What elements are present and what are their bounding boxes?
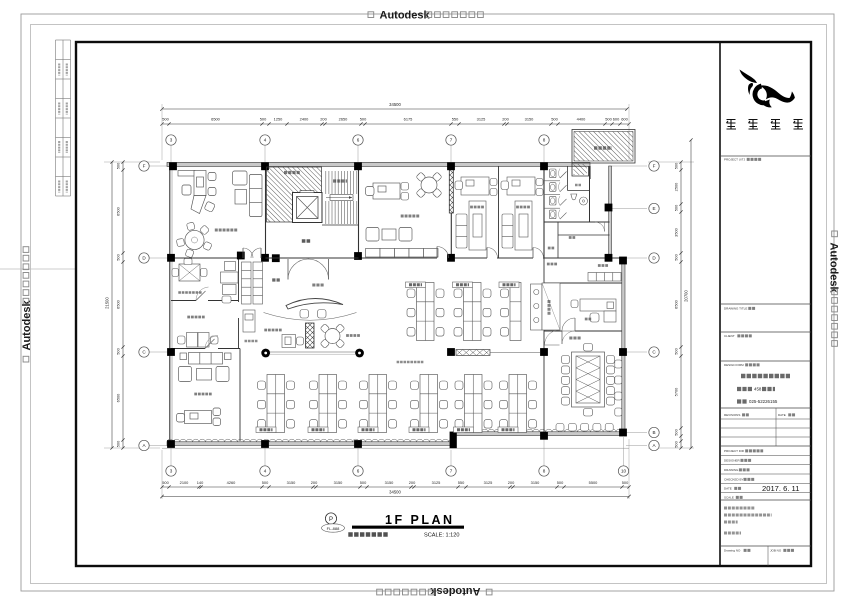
svg-text:34500: 34500 <box>389 102 401 107</box>
svg-text:200: 200 <box>508 480 515 485</box>
svg-text:3125: 3125 <box>484 480 493 485</box>
svg-text:1250: 1250 <box>274 117 283 122</box>
svg-text:500: 500 <box>116 440 121 447</box>
svg-text:500: 500 <box>673 162 678 169</box>
svg-text:500: 500 <box>605 117 612 122</box>
svg-text:500: 500 <box>116 162 121 169</box>
svg-text:6500: 6500 <box>116 393 121 402</box>
svg-text:3150: 3150 <box>385 480 394 485</box>
svg-text:550: 550 <box>458 480 465 485</box>
svg-text:4400: 4400 <box>577 117 586 122</box>
svg-text:2100: 2100 <box>180 480 189 485</box>
svg-text:Autodesk: Autodesk <box>430 585 481 597</box>
svg-text:2650: 2650 <box>339 117 348 122</box>
svg-text:6500: 6500 <box>673 299 678 308</box>
svg-text:10: 10 <box>621 469 627 474</box>
svg-text:500: 500 <box>551 117 558 122</box>
svg-text:500: 500 <box>260 117 267 122</box>
svg-text:Drawing NO: Drawing NO <box>724 549 741 553</box>
svg-text:3150: 3150 <box>334 480 343 485</box>
svg-text:140: 140 <box>197 480 204 485</box>
svg-text:B: B <box>652 430 655 435</box>
svg-text:21500: 21500 <box>105 297 110 309</box>
svg-text:3500: 3500 <box>673 227 678 236</box>
svg-text:500: 500 <box>116 347 121 354</box>
svg-text:SCALE: SCALE <box>724 496 734 500</box>
svg-text:200: 200 <box>502 117 509 122</box>
svg-text:200: 200 <box>320 117 327 122</box>
svg-text:2017. 6. 11: 2017. 6. 11 <box>762 484 799 493</box>
svg-text:3125: 3125 <box>432 480 441 485</box>
svg-text:458: 458 <box>754 387 762 392</box>
svg-text:500: 500 <box>673 253 678 260</box>
svg-text:500: 500 <box>673 347 678 354</box>
svg-text:F: F <box>143 164 146 169</box>
svg-text:SCALE: 1:120: SCALE: 1:120 <box>424 533 459 539</box>
svg-text:DRAWING: DRAWING <box>724 468 739 472</box>
svg-text:DATE: DATE <box>724 487 732 491</box>
svg-text:200: 200 <box>409 480 416 485</box>
svg-text:6175: 6175 <box>404 117 413 122</box>
svg-text:6500: 6500 <box>116 206 121 215</box>
svg-text:7: 7 <box>450 469 453 474</box>
svg-text:Autodesk: Autodesk <box>21 300 33 351</box>
svg-text:E: E <box>652 206 655 211</box>
svg-text:500: 500 <box>116 253 121 260</box>
svg-text:500: 500 <box>673 428 678 435</box>
svg-text:500: 500 <box>622 480 629 485</box>
svg-text:8: 8 <box>543 138 546 143</box>
svg-text:FL-888: FL-888 <box>327 526 340 531</box>
svg-text:DATE: DATE <box>778 413 786 417</box>
svg-text:4: 4 <box>264 138 267 143</box>
svg-text:Autodesk: Autodesk <box>828 243 840 294</box>
svg-text:3150: 3150 <box>525 117 534 122</box>
svg-text:DESIGN FIRM: DESIGN FIRM <box>724 363 744 367</box>
svg-text:DESIGNER: DESIGNER <box>724 459 741 463</box>
svg-text:3150: 3150 <box>531 480 540 485</box>
svg-text:CLIENT: CLIENT <box>724 334 735 338</box>
svg-text:5700: 5700 <box>673 387 678 396</box>
svg-text:PROJECT DIR: PROJECT DIR <box>724 449 745 453</box>
svg-text:2500: 2500 <box>673 182 678 191</box>
svg-text:6: 6 <box>357 469 360 474</box>
svg-text:6500: 6500 <box>211 117 220 122</box>
svg-text:5500: 5500 <box>589 480 598 485</box>
svg-text:500: 500 <box>557 480 564 485</box>
svg-text:200: 200 <box>311 480 318 485</box>
svg-text:6500: 6500 <box>116 299 121 308</box>
svg-text:4: 4 <box>264 469 267 474</box>
svg-text:500: 500 <box>360 480 367 485</box>
svg-text:20700: 20700 <box>684 290 689 302</box>
svg-text:500: 500 <box>673 440 678 447</box>
svg-text:500: 500 <box>262 480 269 485</box>
svg-text:6: 6 <box>357 138 360 143</box>
svg-text:F: F <box>653 164 656 169</box>
svg-text:JOB NO: JOB NO <box>770 549 782 553</box>
svg-text:8: 8 <box>543 469 546 474</box>
svg-text:1F PLAN: 1F PLAN <box>385 513 455 527</box>
svg-text:34500: 34500 <box>389 490 401 495</box>
svg-text:DRAWING TITLE: DRAWING TITLE <box>724 307 747 311</box>
svg-text:CHECKED BY: CHECKED BY <box>724 478 744 482</box>
svg-text:500: 500 <box>360 117 367 122</box>
svg-text:PROJECT U/TJ: PROJECT U/TJ <box>724 158 746 162</box>
svg-text:3125: 3125 <box>477 117 486 122</box>
svg-text:600: 600 <box>613 117 620 122</box>
svg-text:4260: 4260 <box>227 480 236 485</box>
svg-text:500: 500 <box>673 204 678 211</box>
svg-text:500: 500 <box>162 117 169 122</box>
svg-text:600: 600 <box>621 117 628 122</box>
svg-text:2400: 2400 <box>300 117 309 122</box>
svg-text:3150: 3150 <box>287 480 296 485</box>
svg-text:025-52226155: 025-52226155 <box>749 399 778 404</box>
svg-text:3: 3 <box>170 469 173 474</box>
svg-text:7: 7 <box>450 138 453 143</box>
svg-text:Autodesk: Autodesk <box>380 10 431 22</box>
svg-text:3: 3 <box>170 138 173 143</box>
svg-text:500: 500 <box>162 480 169 485</box>
svg-text:REVISIONS: REVISIONS <box>724 413 740 417</box>
svg-text:550: 550 <box>452 117 459 122</box>
svg-text:P: P <box>329 517 333 523</box>
